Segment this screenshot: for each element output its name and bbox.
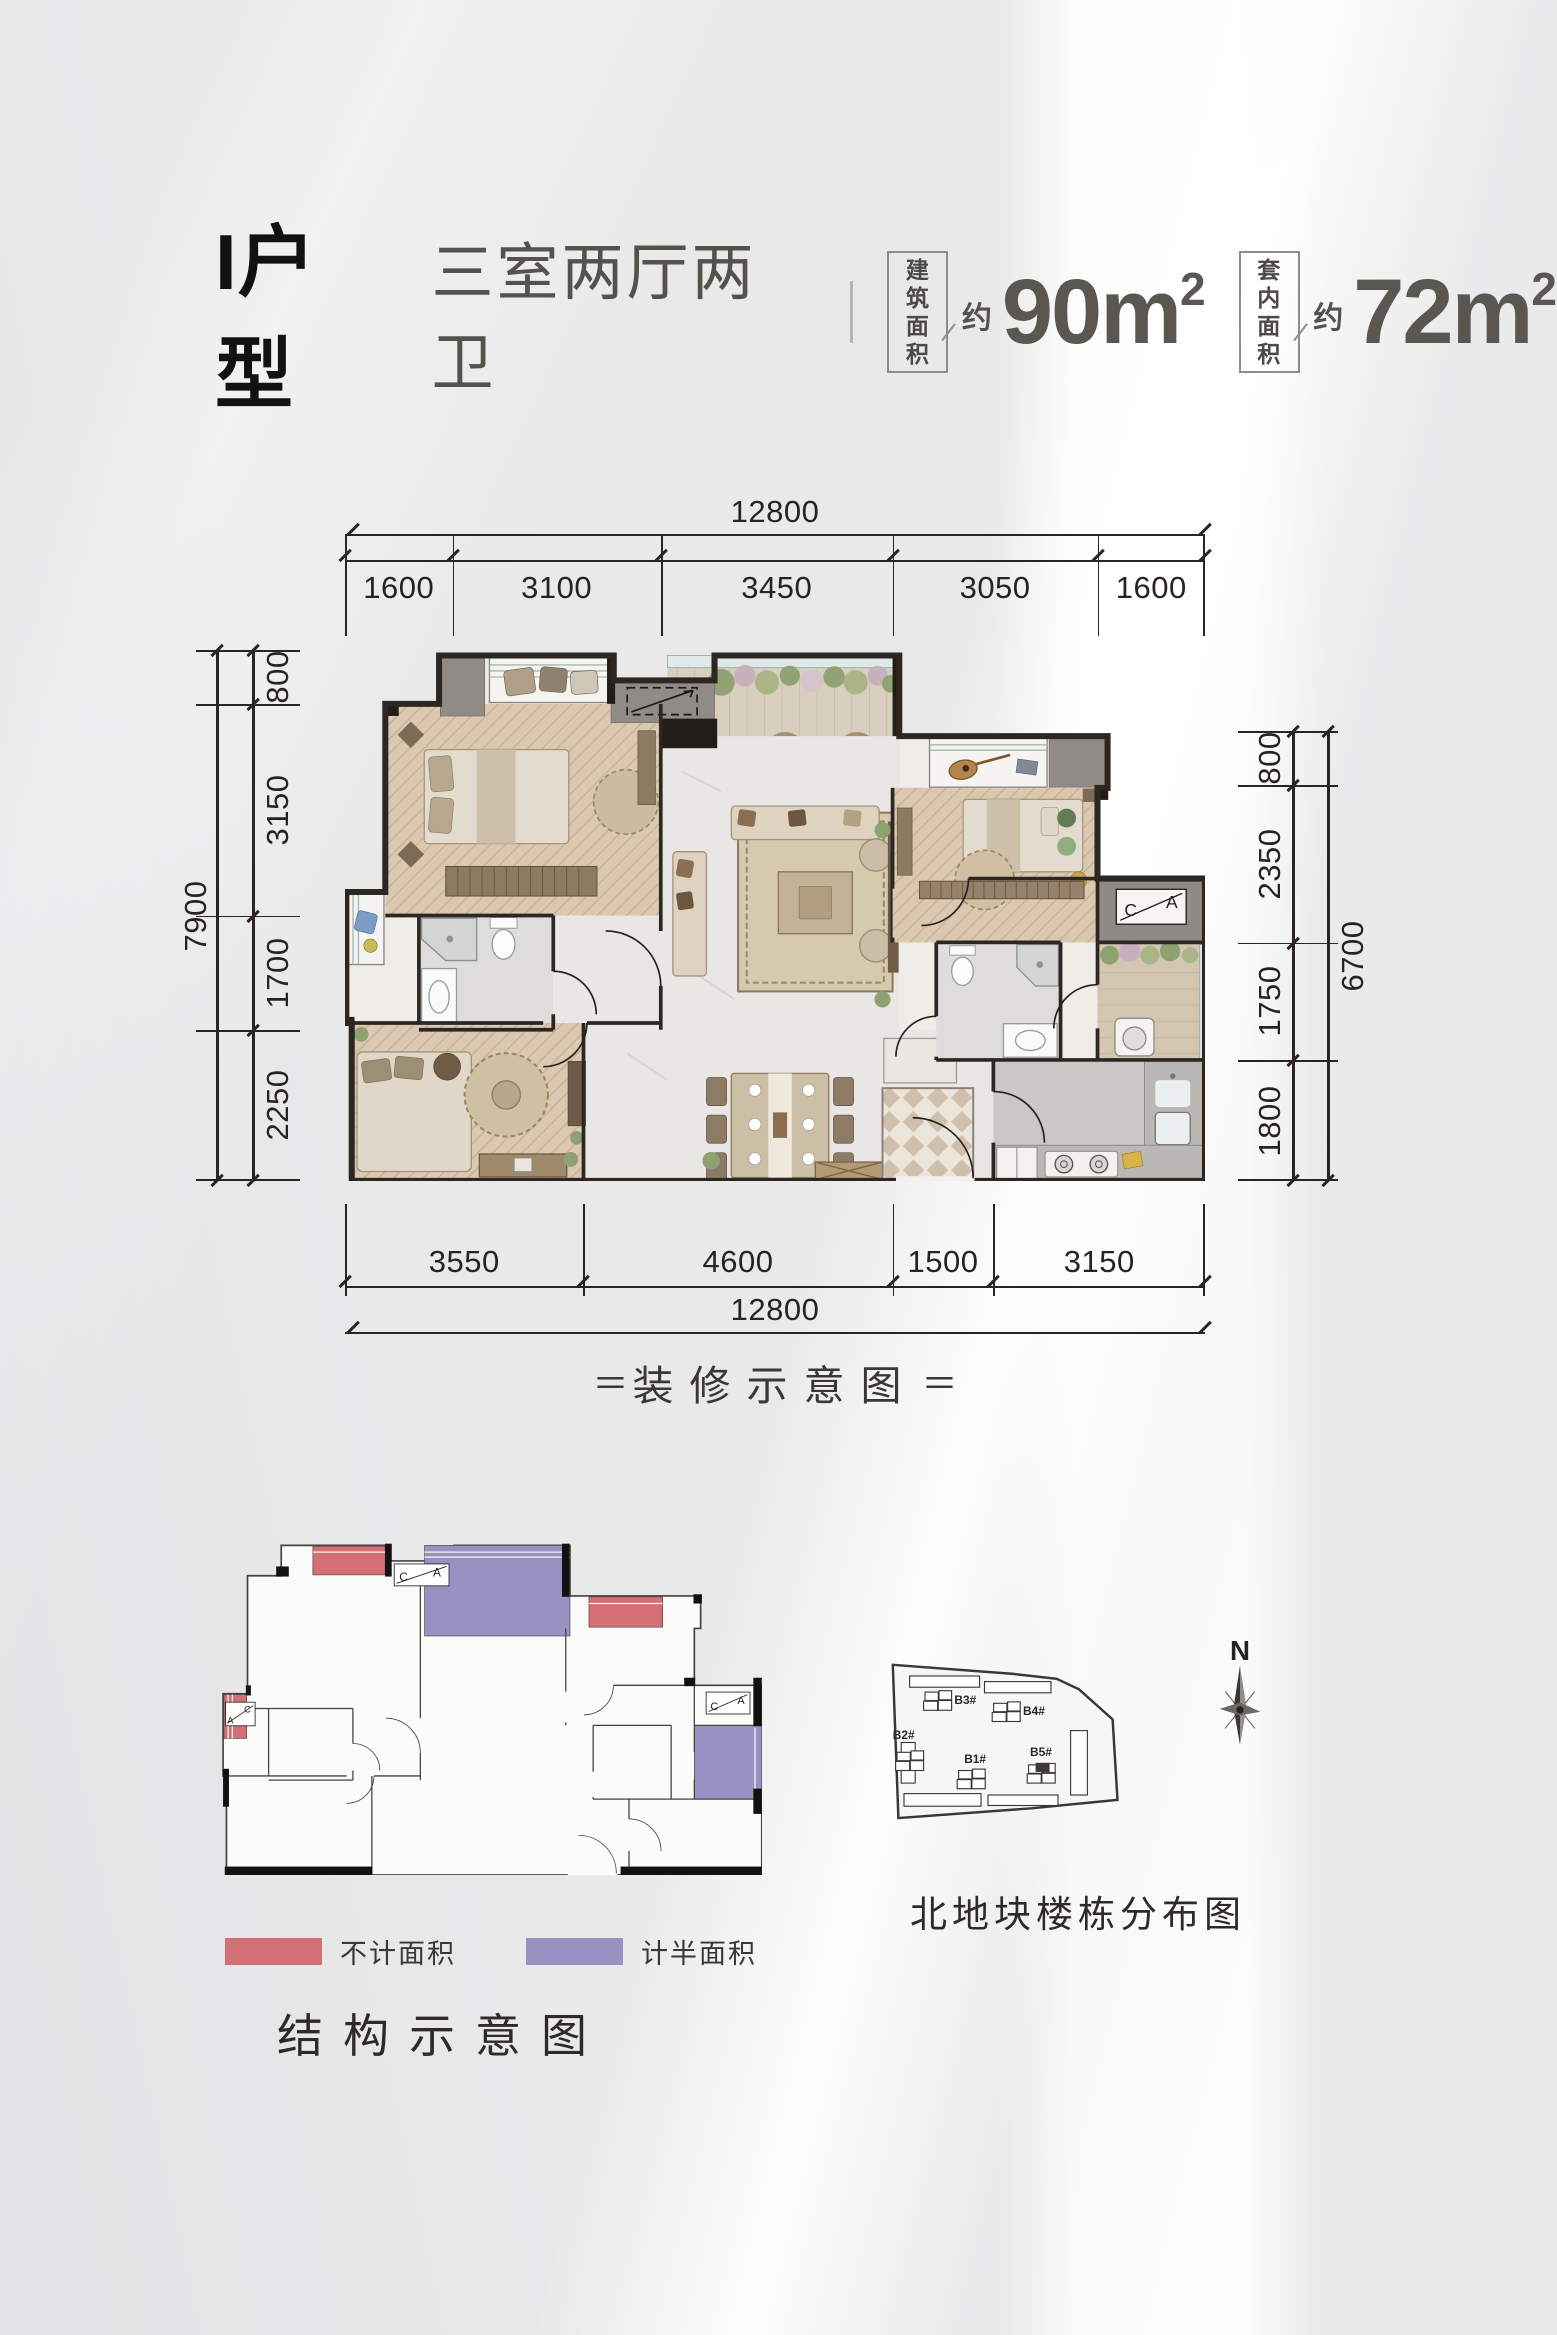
inner-area-group: 套内 面积 约 72m2 <box>1239 251 1557 373</box>
dim-label: 3100 <box>521 570 592 606</box>
dim-label: 3150 <box>260 774 296 845</box>
svg-text:C: C <box>710 1701 718 1713</box>
building-b4 <box>992 1702 1020 1722</box>
dim-left-segments: 800 3150 1700 2250 <box>252 650 312 1181</box>
dim-right-seg-line <box>1292 731 1295 1181</box>
bedroom-three <box>352 1023 584 1181</box>
dim-right-total: 6700 <box>1317 731 1363 1181</box>
structure-caption: 结构示意图 <box>222 2000 662 2066</box>
built-area-box-bottom: 面积 <box>896 312 939 368</box>
dim-top-total: 12800 <box>345 494 1205 536</box>
svg-text:C: C <box>1124 900 1137 920</box>
legend-label: 计半面积 <box>641 1932 757 1971</box>
inner-area-value: 72m2 <box>1353 266 1557 358</box>
svg-text:A: A <box>1166 892 1178 912</box>
dim-label: 3450 <box>741 570 812 606</box>
dim-label: 3550 <box>429 1244 500 1280</box>
legend-item-excluded: 不计面积 <box>225 1932 456 1971</box>
dim-bottom-total: 12800 <box>345 1292 1205 1334</box>
dim-label: 1500 <box>907 1244 978 1280</box>
svg-text:A: A <box>433 1566 441 1580</box>
dim-label: 800 <box>260 650 296 703</box>
bedroom-two-bay-window <box>930 737 1048 787</box>
struct-entry-gap <box>568 1871 617 1875</box>
dim-right-segments: 800 2350 1750 1800 <box>1262 731 1322 1181</box>
svg-text:B1#: B1# <box>964 1752 986 1766</box>
layout-description: 三室两厅两卫 <box>431 222 812 402</box>
compass: N <box>1212 1636 1268 1756</box>
siteplan-caption: 北地块楼栋分布图 <box>910 1884 1246 1938</box>
dim-label: 800 <box>1252 731 1288 784</box>
caption-decor-left: ＝ <box>592 1363 628 1404</box>
left-bay-window <box>348 893 384 964</box>
master-bay-window <box>489 657 613 703</box>
dim-label: 1600 <box>363 570 434 606</box>
highlighted-unit-marker <box>1036 1763 1050 1772</box>
built-area-value: 90m2 <box>1002 266 1206 358</box>
siteplan-diagram: B3# B4# B2# B1# B5# <box>876 1634 1212 1872</box>
dim-label: 1750 <box>1252 966 1288 1037</box>
dim-label: 3050 <box>960 570 1031 606</box>
inner-area-approx: 约 <box>1313 293 1343 337</box>
caption-decor-right: ＝ <box>922 1363 958 1404</box>
legend-label: 不计面积 <box>340 1932 456 1971</box>
structure-legend: 不计面积 计半面积 <box>225 1932 757 1971</box>
floorplan-poster: { "header": { "unit_name": "I户型", "layou… <box>0 0 1557 2335</box>
bathroom-two <box>936 942 1060 1060</box>
svg-text:B5#: B5# <box>1030 1745 1052 1759</box>
master-bedroom <box>385 704 660 916</box>
svg-text:A: A <box>737 1695 745 1707</box>
built-area-box: 建筑 面积 <box>887 251 948 373</box>
legend-swatch-excluded <box>225 1938 322 1965</box>
built-area-group: 建筑 面积 约 90m2 <box>887 251 1205 373</box>
dim-bottom-total-line <box>345 1332 1205 1334</box>
svg-text:B3#: B3# <box>954 1693 976 1707</box>
dim-top-total-label: 12800 <box>345 494 1205 530</box>
service-balcony <box>1098 940 1206 1060</box>
dim-label: 2250 <box>260 1070 296 1141</box>
svg-text:C: C <box>244 1704 251 1714</box>
compass-north-label: N <box>1230 1636 1250 1666</box>
svg-text:C: C <box>399 1570 408 1584</box>
legend-item-half: 计半面积 <box>526 1932 757 1971</box>
dim-bottom-segments: 3550 4600 1500 3150 <box>345 1244 1205 1288</box>
building-b1 <box>957 1769 985 1789</box>
dim-top-total-line <box>345 534 1205 536</box>
dim-bottom-seg-line <box>345 1286 1205 1288</box>
inner-area-box: 套内 面积 <box>1239 251 1300 373</box>
bedroom-two <box>893 788 1098 943</box>
svg-text:B2#: B2# <box>893 1728 915 1742</box>
bathroom-master <box>419 916 553 1030</box>
plan-caption-text: 装修示意图 <box>633 1363 918 1409</box>
ac-platform-right: C A <box>1098 880 1206 942</box>
unit-type-title: I户型 <box>215 200 391 424</box>
svg-text:B4#: B4# <box>1023 1704 1045 1718</box>
dim-top-seg-line <box>345 560 1205 562</box>
dim-label: 2350 <box>1252 828 1288 899</box>
inner-area-box-top: 套内 <box>1248 256 1291 312</box>
dim-label: 1600 <box>1116 570 1187 606</box>
structural-diagram: C A A C C A <box>222 1542 762 1875</box>
compass-rose-icon <box>1220 1666 1261 1745</box>
entry-door-gap <box>896 1176 975 1181</box>
inner-area-box-bottom: 面积 <box>1248 312 1291 368</box>
dim-label: 4600 <box>703 1244 774 1280</box>
dim-label: 3150 <box>1064 1244 1135 1280</box>
building-b3 <box>924 1691 952 1711</box>
header: I户型 三室两厅两卫 建筑 面积 约 90m2 套内 面积 约 72m2 <box>215 252 1557 372</box>
kitchen <box>993 1060 1205 1181</box>
header-divider <box>850 281 853 343</box>
dim-bottom-total-label: 12800 <box>345 1292 1205 1328</box>
decorated-plan-caption: ＝装修示意图＝ <box>345 1352 1205 1412</box>
dim-label: 1700 <box>260 937 296 1008</box>
dim-right-total-line <box>1327 731 1330 1181</box>
built-area-approx: 约 <box>962 293 992 337</box>
washing-machine-icon <box>1115 1018 1154 1056</box>
built-area-box-top: 建筑 <box>896 256 939 312</box>
legend-swatch-half <box>526 1938 623 1965</box>
dim-top-segments: 1600 3100 3450 3050 1600 <box>345 560 1205 630</box>
building-b2 <box>896 1751 924 1771</box>
svg-text:A: A <box>227 1715 234 1725</box>
decorated-floorplan: C A <box>345 650 1205 1181</box>
dim-right-total-label: 6700 <box>1335 921 1371 992</box>
dim-label: 1800 <box>1252 1085 1288 1156</box>
